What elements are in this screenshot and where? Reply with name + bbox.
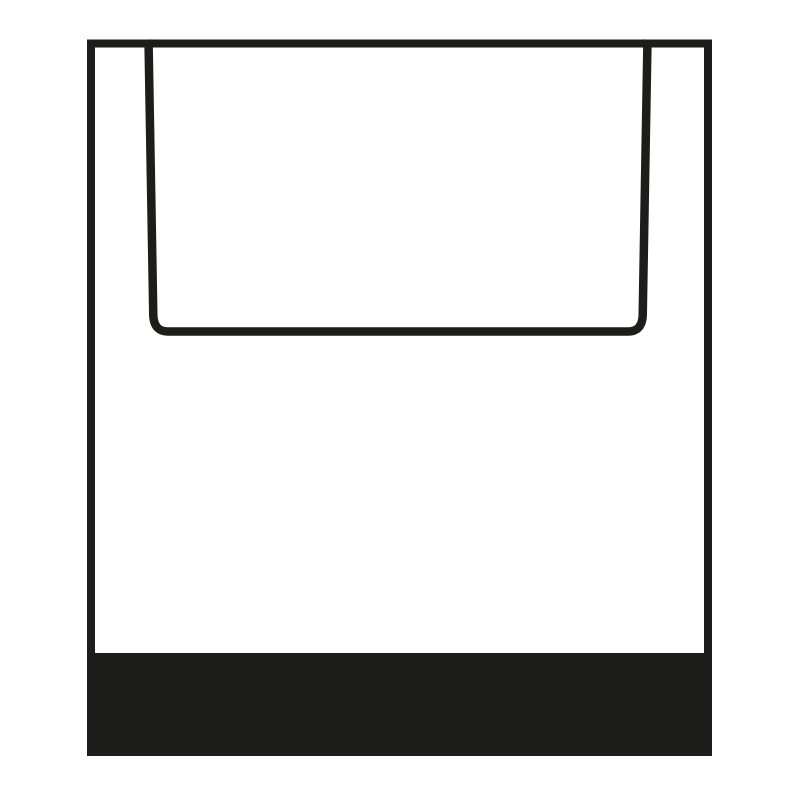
- icon-canvas: [0, 0, 800, 800]
- container-base-band: [87, 653, 712, 756]
- container-inner-recess: [149, 40, 648, 332]
- container-outer-frame: [91, 44, 708, 753]
- open-top-container-icon: [0, 0, 800, 800]
